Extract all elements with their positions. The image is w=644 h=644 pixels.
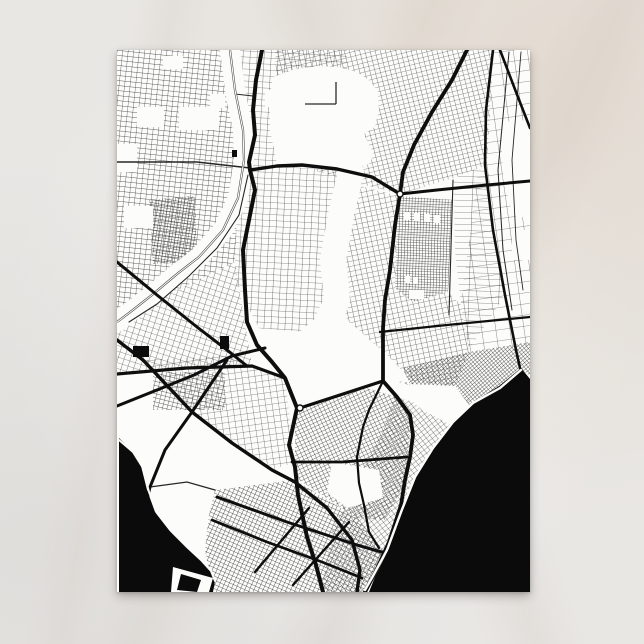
open-patch [163,56,183,69]
road-junction [397,191,403,197]
open-patch [512,230,530,260]
building-dot [404,212,410,220]
building-dot [424,214,430,222]
airport-field [270,66,379,170]
building-dot [413,277,418,284]
port-building [220,336,229,349]
building-dot [409,290,424,299]
building-dot [405,276,410,283]
open-patch [117,144,137,172]
map-postcard [117,50,530,592]
port-building [133,346,149,357]
marble-surface-background [0,0,644,644]
open-patch [137,107,164,127]
road-junction [297,405,303,411]
building-dot [434,215,440,223]
district-super-dense-block [395,196,453,302]
open-patch [179,107,219,130]
open-patch [210,94,225,108]
open-patch [124,206,153,228]
city-map-print [117,50,530,592]
building-dot [414,213,420,221]
port-building [232,150,237,157]
open-patch [265,90,278,107]
